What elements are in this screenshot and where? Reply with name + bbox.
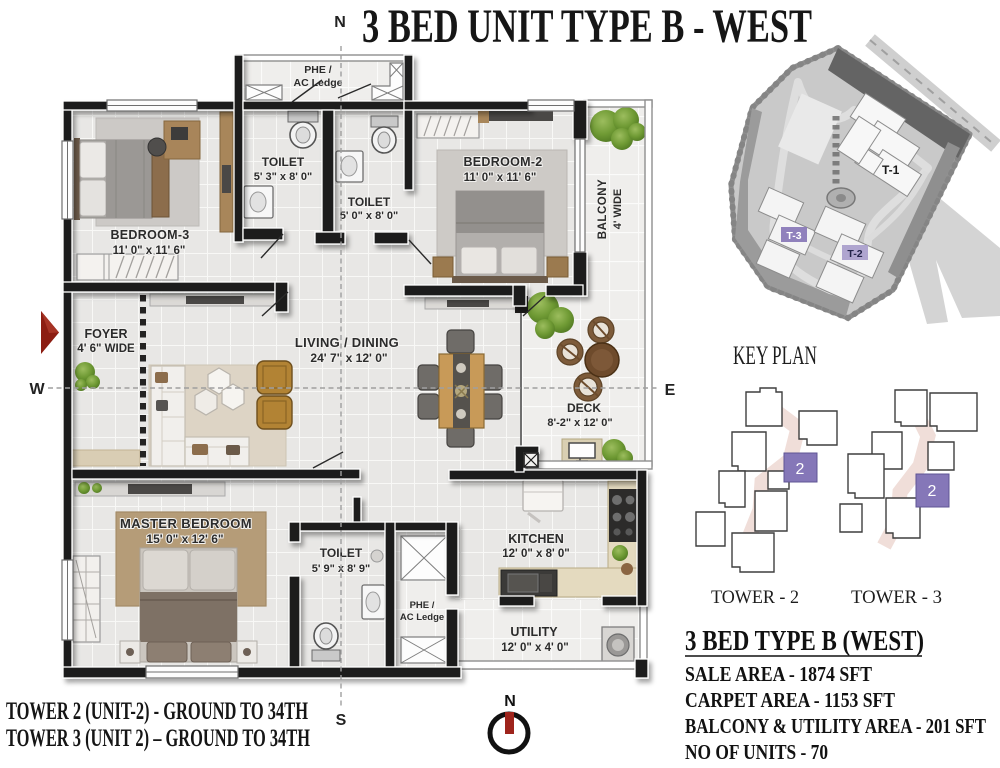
svg-text:TOWER - 3: TOWER - 3: [851, 587, 942, 608]
svg-text:TOWER 2 (UNIT-2) - GROUND TO 3: TOWER 2 (UNIT-2) - GROUND TO 34TH: [6, 698, 308, 725]
svg-text:KITCHEN: KITCHEN: [508, 532, 564, 546]
svg-text:T-2: T-2: [847, 248, 862, 260]
svg-text:UTILITY: UTILITY: [510, 625, 558, 639]
svg-text:MASTER BEDROOM: MASTER BEDROOM: [120, 516, 252, 531]
svg-text:CARPET AREA - 1153 SFT: CARPET AREA - 1153 SFT: [685, 688, 895, 712]
svg-text:T-3: T-3: [786, 230, 801, 242]
svg-text:E: E: [665, 382, 676, 399]
svg-text:TOILET: TOILET: [262, 155, 305, 169]
svg-text:11' 0" x 11' 6": 11' 0" x 11' 6": [113, 245, 186, 257]
svg-text:5' 0" x 8' 0": 5' 0" x 8' 0": [340, 210, 398, 222]
svg-text:4' 6" WIDE: 4' 6" WIDE: [77, 343, 135, 355]
svg-text:BALCONY & UTILITY AREA - 201 S: BALCONY & UTILITY AREA - 201 SFT: [685, 714, 986, 738]
svg-text:BALCONY: BALCONY: [597, 179, 609, 239]
svg-text:AC Ledge: AC Ledge: [400, 612, 444, 623]
svg-text:PHE /: PHE /: [304, 64, 332, 76]
svg-text:FOYER: FOYER: [84, 327, 127, 341]
svg-text:15' 0" x 12' 6": 15' 0" x 12' 6": [146, 532, 223, 546]
svg-text:TOWER - 2: TOWER - 2: [711, 587, 799, 608]
svg-text:24' 7" x 12' 0": 24' 7" x 12' 0": [310, 351, 387, 365]
svg-text:3 BED UNIT TYPE B - WEST: 3 BED UNIT TYPE B - WEST: [362, 0, 812, 53]
svg-text:4' WIDE: 4' WIDE: [612, 189, 624, 230]
svg-text:BEDROOM-3: BEDROOM-3: [110, 228, 189, 242]
svg-text:12' 0" x 8' 0": 12' 0" x 8' 0": [502, 548, 570, 560]
svg-text:TOILET: TOILET: [348, 195, 391, 209]
svg-text:8'-2" x 12' 0": 8'-2" x 12' 0": [547, 417, 612, 429]
svg-text:NO OF UNITS - 70: NO OF UNITS - 70: [685, 740, 828, 764]
svg-text:N: N: [504, 693, 516, 710]
svg-text:N: N: [334, 14, 346, 31]
svg-text:LIVING / DINING: LIVING / DINING: [295, 335, 399, 350]
svg-text:PHE /: PHE /: [410, 600, 435, 611]
svg-text:S: S: [336, 712, 347, 729]
svg-text:11' 0" x 11' 6": 11' 0" x 11' 6": [464, 172, 537, 184]
svg-text:TOWER 3 (UNIT 2) – GROUND TO: TOWER 3 (UNIT 2) – GROUND TO 34TH: [6, 725, 310, 752]
svg-text:W: W: [29, 381, 45, 398]
svg-text:5' 3" x 8' 0": 5' 3" x 8' 0": [254, 171, 312, 183]
svg-text:KEY PLAN: KEY PLAN: [733, 341, 817, 370]
svg-text:T-1: T-1: [882, 163, 900, 177]
svg-text:2: 2: [928, 483, 937, 500]
svg-text:SALE AREA - 1874 SFT: SALE AREA - 1874 SFT: [685, 662, 872, 686]
svg-text:BEDROOM-2: BEDROOM-2: [463, 155, 542, 169]
svg-text:DECK: DECK: [567, 401, 601, 415]
svg-text:3 BED TYPE B (WEST): 3 BED TYPE B (WEST): [685, 625, 924, 657]
svg-text:12' 0" x 4' 0": 12' 0" x 4' 0": [501, 642, 569, 654]
svg-text:2: 2: [796, 461, 805, 478]
